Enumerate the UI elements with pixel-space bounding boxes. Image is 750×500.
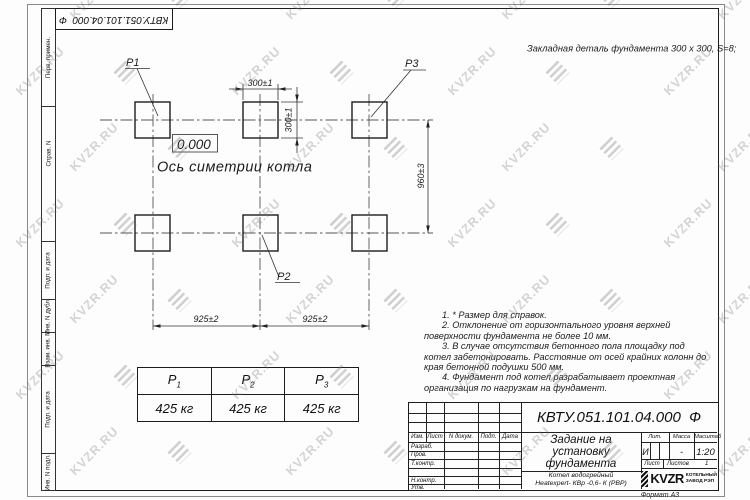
title-block: Изм. Лист N докум. Подп. Дата Разраб. Пр… [408,402,719,491]
title-block-grid-line [409,484,521,485]
tb-product-line: Heatexpert- КВр -0,6- К (РВР) [535,480,627,488]
note-line: 2. Отклонение от горизонтального уровня … [424,320,712,341]
tb-sheets-value: 1 [705,461,708,467]
load-table-value-row: 425 кг 425 кг 425 кг [138,395,359,422]
rotated-designation-text: КВТУ.051.101.04.000 Ф [59,14,168,25]
tb-sheet-label: Лист [641,461,663,467]
title-block-grid-line [650,442,651,459]
tb-header-data: Дата [499,434,521,440]
title-block-grid-line [409,413,521,414]
load-table-header-row: P1 P2 P3 [138,368,359,395]
side-label: Подп. и дата [45,391,52,427]
tb-row-prov: Пров. [411,452,427,458]
side-box-perv-primen: Перв. примен. [42,9,55,106]
side-label: Инв. N дубл. [45,298,52,334]
company-name: KVZR [650,471,683,486]
load-table-header: P1 [138,368,212,395]
title-block-grid-line [641,442,717,443]
side-label: Инв. N подл. [45,454,52,490]
company-tagline: КОТЕЛЬНЫЙ ЗАВОД РЭП [686,473,717,484]
load-symbol-index: 3 [324,381,328,390]
title-block-grid-line [663,459,664,468]
side-box-inv-dubl: Инв. N дубл. [42,299,55,332]
tb-document-title: Задание на установку фундамента [521,432,641,471]
kvzr-logo-icon [641,471,648,487]
tb-litera-label: Лит. [641,434,669,440]
title-block-grid-line [409,422,521,423]
tb-document-title-line: установку [552,446,609,458]
notes-block: 1. * Размер для справок. 2. Отклонение о… [424,310,712,393]
left-attribute-strip: Перв. примен. Справ. N Подп. и дата Инв.… [41,8,56,491]
side-box-podp-data-2: Подп. и дата [42,365,55,453]
tb-product-name: Котел водогрейный Heatexpert- КВр -0,6- … [521,471,641,489]
load-symbol: P [241,372,250,387]
side-box-inv-podl: Инв. N подл. [42,453,55,491]
tb-header-ndokum: N докум. [444,434,478,440]
side-box-podp-data-1: Подп. и дата [42,241,55,299]
load-table: P1 P2 P3 425 кг 425 кг 425 кг [137,367,359,422]
note-line: 4. Фундамент под котел разрабатывает про… [424,372,712,393]
tb-document-title-line: Задание на [550,434,611,446]
tb-row-nkontr: Н.контр. [411,478,436,484]
load-symbol: P [315,372,324,387]
load-table-header: P3 [285,368,359,395]
side-box-vzam-inv: Взам. инв. N [42,332,55,365]
tb-header-podp: Подп. [478,434,499,440]
load-value: 425 кг [285,395,359,422]
load-value: 425 кг [138,395,212,422]
tb-row-utv: Утв. [411,485,425,491]
load-symbol-index: 2 [250,381,254,390]
rotated-designation-stamp: КВТУ.051.101.04.000 Ф [55,8,173,30]
load-value: 425 кг [211,395,285,422]
tb-litera-value: И [641,447,650,457]
tb-document-title-line: фундамента [546,458,617,470]
note-line: 3. В случае отсутствия бетонного пола пл… [424,341,712,372]
tb-row-razrab: Разраб. [411,444,433,450]
side-label: Взам. инв. N [45,331,52,367]
title-block-grid-line [409,468,521,469]
title-block-grid-line [659,442,660,459]
company-logo: KVZR КОТЕЛЬНЫЙ ЗАВОД РЭП [641,468,717,489]
tb-mass-label: Масса [669,434,694,440]
tb-designation: КВТУ.051.101.04.000 Ф [521,403,717,432]
tb-scale-value: 1:20 [694,447,717,458]
side-label: Перв. примен. [45,37,52,78]
format-note: Формат А3 [595,492,725,499]
load-symbol-index: 1 [176,381,180,390]
tb-row-tkontr: Т.контр. [411,461,435,467]
company-tagline-line: ЗАВОД РЭП [686,479,717,485]
tb-header-list: Лист [426,434,444,440]
side-label: Подп. и дата [45,252,52,288]
tb-scale-label: Масштаб [694,434,717,440]
side-box-sprav-n: Справ. N [42,106,55,199]
load-table-header: P2 [211,368,285,395]
note-line: 1. * Размер для справок. [424,310,712,320]
side-label: Справ. N [45,140,52,166]
tb-product-line: Котел водогрейный [549,472,614,480]
drawing-sheet: Перв. примен. Справ. N Подп. и дата Инв.… [0,0,750,500]
tb-header-izm: Изм. [409,434,426,440]
tb-sheets-label: Листов [667,461,689,467]
tb-mass-value: - [669,447,694,457]
